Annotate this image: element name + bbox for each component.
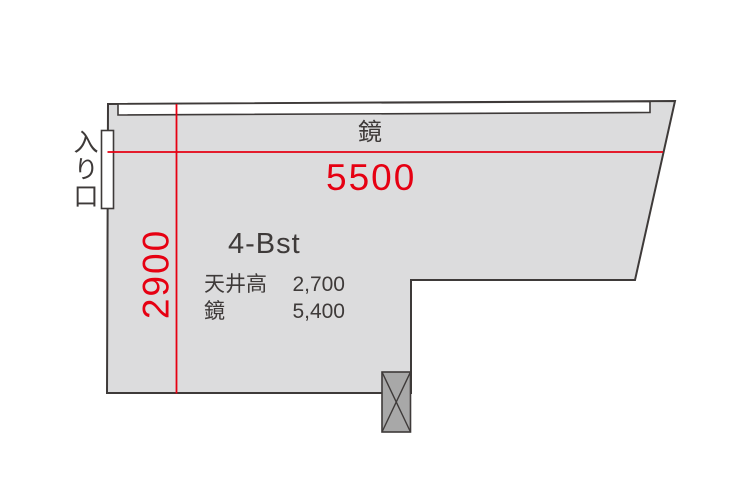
spec-row-ceiling: 天井高 2,700 <box>204 271 345 298</box>
entrance-door <box>102 131 114 209</box>
width-dimension-label: 5500 <box>326 159 416 196</box>
spec-row-mirror: 鏡 5,400 <box>204 298 345 325</box>
floor-plan-drawing <box>0 0 750 498</box>
mirror-strip <box>118 102 650 116</box>
entrance-label: 入り口 <box>71 129 96 210</box>
spec-label-ceiling: 天井高 <box>204 271 267 298</box>
spec-value-mirror: 5,400 <box>292 298 345 325</box>
spec-value-ceiling: 2,700 <box>292 271 345 298</box>
depth-dimension-label: 2900 <box>138 229 175 319</box>
room-name-label: 4-Bst <box>228 230 301 259</box>
mirror-label: 鏡 <box>345 121 395 145</box>
pillar <box>382 372 411 432</box>
room-specs: 天井高 2,700 鏡 5,400 <box>204 271 345 325</box>
floor-plan: 鏡 5500 2900 4-Bst 天井高 2,700 鏡 5,400 入り口 <box>0 0 750 498</box>
spec-label-mirror: 鏡 <box>204 298 225 325</box>
